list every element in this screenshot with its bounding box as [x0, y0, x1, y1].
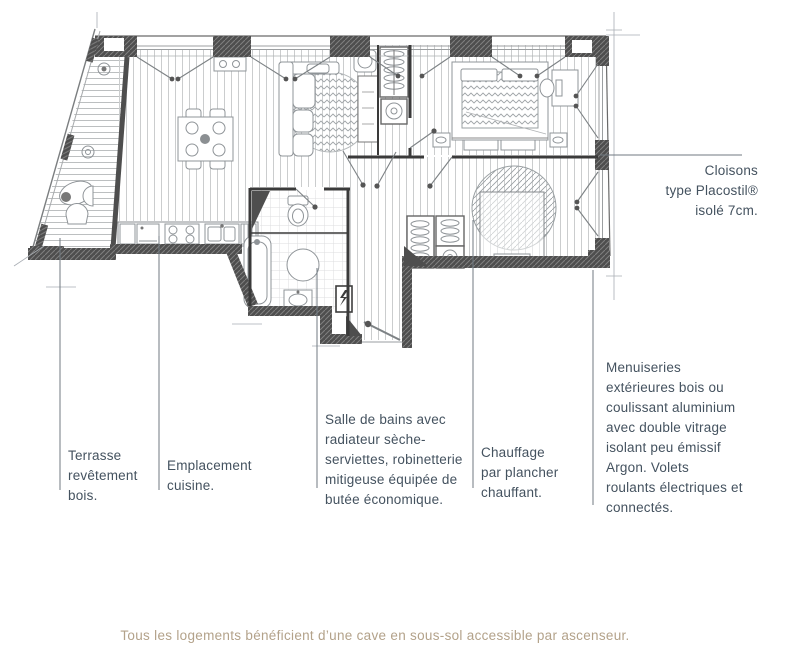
kitchen-hob [165, 224, 199, 244]
washing-machine [381, 99, 407, 124]
annotation-line: Chauffage [481, 443, 558, 463]
annotation-line: Cloisons [650, 161, 758, 181]
annotation-line: par plancher [481, 463, 558, 483]
annotation-line: roulants électriques et [606, 478, 743, 498]
tall-cabinet [358, 76, 378, 142]
annotation-cloisons: Cloisons type Placostil® isolé 7cm. [650, 161, 758, 221]
annotation-menuiseries: Menuiseries extérieures bois ou coulissa… [606, 358, 743, 518]
kitchen-counter [118, 222, 258, 246]
annotation-line: Salle de bains avec [325, 410, 463, 430]
annotation-line: extérieures bois ou [606, 378, 743, 398]
floor-plan-page: Cloisons type Placostil® isolé 7cm. Menu… [0, 0, 800, 663]
annotation-salle-de-bains: Salle de bains avec radiateur sèche- ser… [325, 410, 463, 510]
hall-floor [348, 155, 406, 340]
annotation-line: mitigeuse équipée de [325, 470, 463, 490]
kitchen-sink [205, 224, 239, 244]
annotation-line: butée économique. [325, 490, 463, 510]
annotation-line: type Placostil® [650, 181, 758, 201]
sideboard [214, 57, 246, 71]
wardrobe-hangers [380, 47, 408, 97]
kitchen-oven [137, 224, 159, 244]
annotation-cuisine: Emplacement cuisine. [167, 456, 252, 496]
annotation-terrasse: Terrasse revêtement bois. [68, 446, 138, 506]
annotation-line: serviettes, robinetterie [325, 450, 463, 470]
annotation-line: bois. [68, 486, 138, 506]
annotation-line: chauffant. [481, 483, 558, 503]
annotation-line: connectés. [606, 498, 743, 518]
bed-single [480, 192, 544, 264]
annotation-line: Menuiseries [606, 358, 743, 378]
shower-basin [287, 249, 319, 281]
annotation-line: isolant peu émissif [606, 438, 743, 458]
floor-plan [0, 0, 800, 663]
annotation-line: revêtement [68, 466, 138, 486]
electrical-panel [336, 286, 352, 312]
annotation-line: Terrasse [68, 446, 138, 466]
annotation-line: radiateur sèche- [325, 430, 463, 450]
bed-double [452, 62, 548, 150]
annotation-line: Argon. Volets [606, 458, 743, 478]
annotation-line: isolé 7cm. [650, 201, 758, 221]
annotation-line: cuisine. [167, 476, 252, 496]
annotation-line: avec double vitrage [606, 418, 743, 438]
page-caption: Tous les logements bénéficient d’une cav… [30, 628, 720, 643]
dining-table [178, 109, 233, 169]
annotation-line: Emplacement [167, 456, 252, 476]
toilet [288, 196, 308, 226]
annotation-line: coulissant aluminium [606, 398, 743, 418]
annotation-chauffage: Chauffage par plancher chauffant. [481, 443, 558, 503]
